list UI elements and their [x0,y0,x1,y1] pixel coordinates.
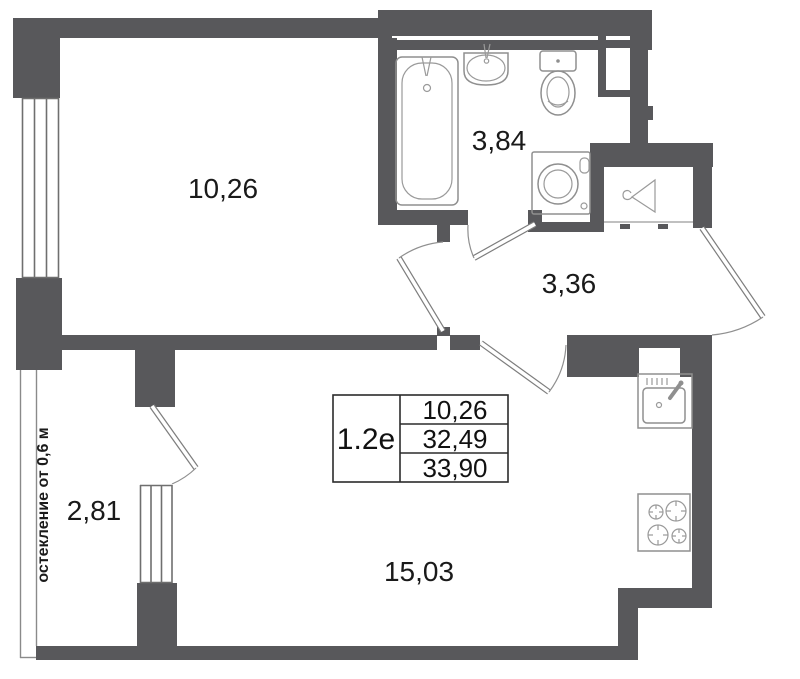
bathroom-door [468,224,535,258]
stove-icon [638,494,690,551]
table-row-total-area: 33,90 [422,453,487,483]
toilet-icon [540,51,576,115]
info-table: 1.2е 10,26 32,49 33,90 [333,395,508,483]
entrance-door [702,228,763,335]
washing-machine-icon [532,152,590,214]
bathroom-area-label: 3,84 [472,125,527,156]
kitchen-living-area-label: 15,03 [384,556,454,587]
bedroom-window [22,98,59,278]
floor-plan: 10,26 3,84 3,36 2,81 15,03 остекление от… [0,0,800,679]
bedroom-area-label: 10,26 [188,173,258,204]
floor-plan-svg: 10,26 3,84 3,36 2,81 15,03 остекление от… [0,0,800,679]
glazing-note: остекление от 0,6 м [35,427,52,582]
balcony-window [140,485,172,583]
closet [604,180,693,229]
table-row-area: 32,49 [422,424,487,454]
living-room-door [481,343,566,392]
walls [13,10,713,660]
kitchen-sink-icon [638,374,692,428]
bedroom-door [399,242,443,331]
wash-basin-icon [464,44,508,85]
unit-type-cell: 1.2е [337,423,395,456]
bathtub-icon [396,57,458,205]
balcony-area-label: 2,81 [67,495,122,526]
hanger-icon [623,180,655,212]
hallway-area-label: 3,36 [542,268,597,299]
balcony-door [152,406,196,484]
table-row-living-area: 10,26 [422,395,487,425]
